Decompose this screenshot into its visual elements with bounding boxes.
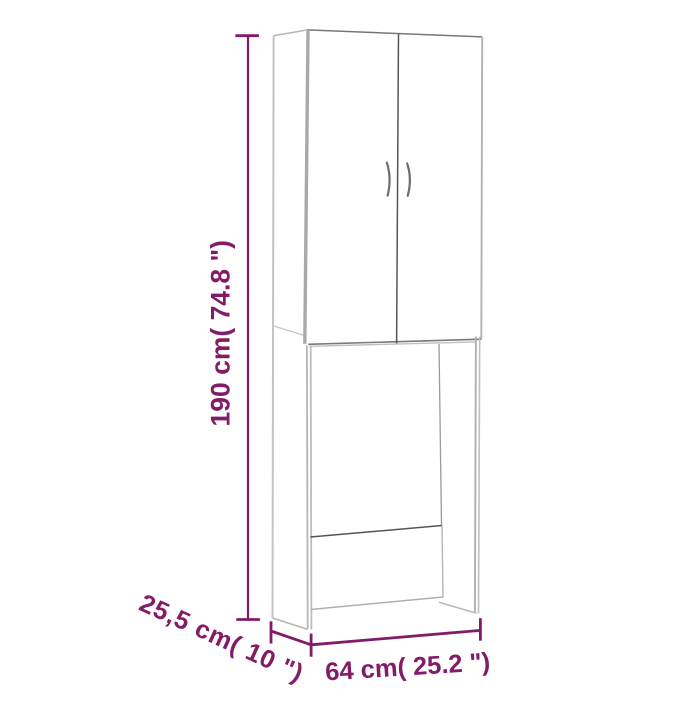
svg-text:190 cm( 74.8 "): 190 cm( 74.8 ") bbox=[205, 240, 235, 426]
